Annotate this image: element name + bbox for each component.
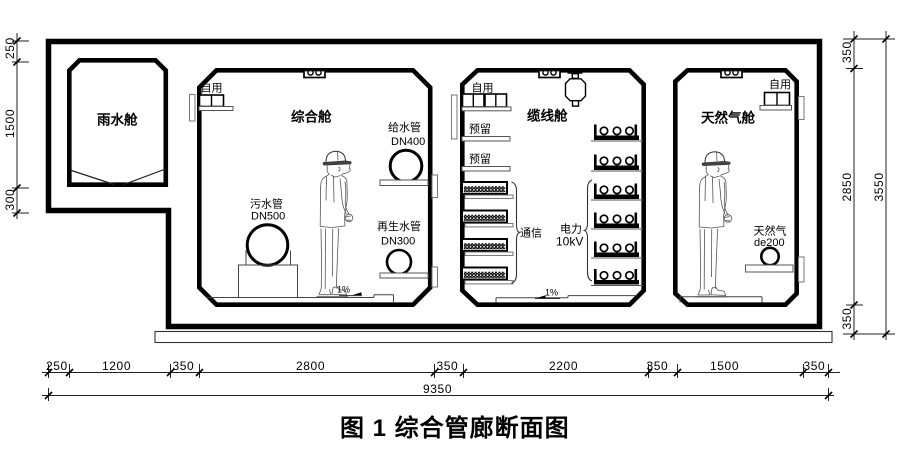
svg-text:1%: 1% — [337, 285, 350, 295]
svg-text:DN400: DN400 — [391, 136, 425, 148]
svg-text:自用: 自用 — [769, 78, 791, 91]
svg-text:1500: 1500 — [710, 359, 739, 373]
svg-text:350: 350 — [437, 359, 459, 373]
svg-text:350: 350 — [173, 359, 195, 373]
svg-text:350: 350 — [804, 359, 826, 373]
svg-text:预留: 预留 — [469, 153, 491, 166]
svg-text:350: 350 — [647, 359, 669, 373]
svg-text:DN300: DN300 — [381, 236, 415, 248]
svg-text:图 1 综合管廊断面图: 图 1 综合管廊断面图 — [340, 414, 570, 442]
svg-text:10kV: 10kV — [556, 235, 583, 249]
svg-text:通信: 通信 — [520, 227, 542, 240]
svg-text:污水管: 污水管 — [250, 197, 283, 211]
svg-text:300: 300 — [3, 189, 17, 211]
svg-text:DN500: DN500 — [251, 211, 285, 223]
svg-text:自用: 自用 — [201, 82, 223, 95]
svg-text:350: 350 — [840, 41, 854, 63]
svg-text:缆线舱: 缆线舱 — [527, 108, 568, 124]
svg-text:350: 350 — [840, 308, 854, 330]
svg-text:3550: 3550 — [872, 172, 886, 201]
svg-text:1200: 1200 — [102, 359, 131, 373]
svg-text:给水管: 给水管 — [388, 120, 421, 134]
svg-text:1%: 1% — [545, 288, 558, 298]
svg-text:雨水舱: 雨水舱 — [97, 112, 138, 128]
svg-text:2800: 2800 — [296, 359, 325, 373]
svg-text:2200: 2200 — [549, 359, 578, 373]
svg-text:9350: 9350 — [423, 382, 452, 396]
svg-text:再生水管: 再生水管 — [377, 219, 421, 233]
svg-text:综合舱: 综合舱 — [291, 109, 332, 125]
svg-text:天然气舱: 天然气舱 — [701, 110, 755, 126]
svg-text:1500: 1500 — [3, 109, 17, 138]
svg-text:天然气: 天然气 — [754, 224, 787, 238]
svg-text:2850: 2850 — [840, 172, 854, 201]
svg-text:预留: 预留 — [469, 123, 491, 136]
svg-text:自用: 自用 — [472, 82, 494, 95]
svg-text:250: 250 — [46, 359, 68, 373]
svg-text:250: 250 — [3, 37, 17, 59]
